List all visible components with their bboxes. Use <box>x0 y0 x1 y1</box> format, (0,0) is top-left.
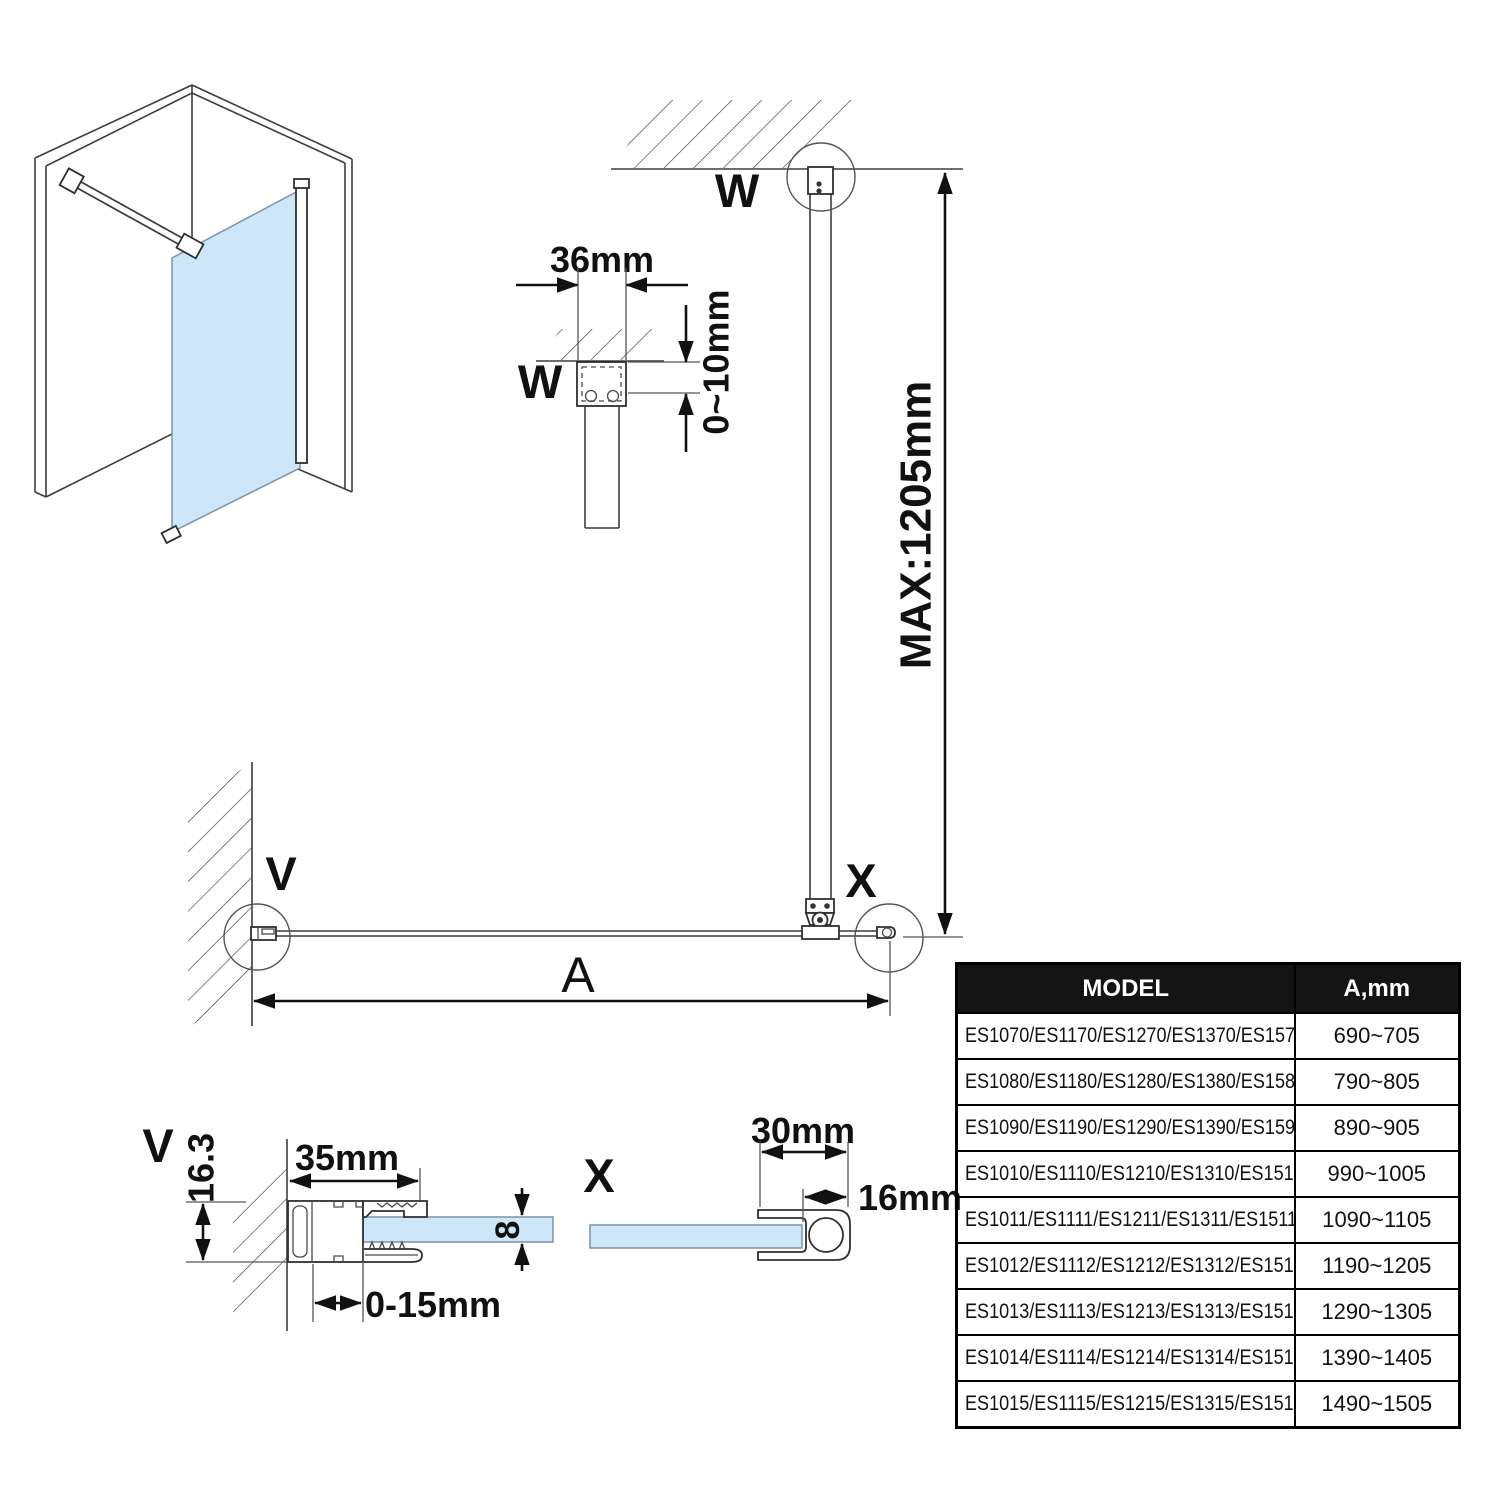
table-row: ES1080/ES1180/ES1280/ES1380/ES1580 790~8… <box>957 1059 1460 1105</box>
detail-w-bracket: 36mm W 0~10mm <box>516 239 737 528</box>
model-cell: ES1014/ES1114/ES1214/ES1314/ES1514 <box>965 1346 1295 1370</box>
label-w-main: W <box>715 164 760 217</box>
model-cell: ES1011/ES1111/ES1211/ES1311/ES1511 <box>965 1208 1295 1232</box>
brace-hinge <box>806 899 834 928</box>
support-bar-3d <box>60 168 204 258</box>
a-cell: 1390~1405 <box>1295 1335 1460 1381</box>
dim-a: A <box>561 947 595 1003</box>
model-cell: ES1012/ES1112/ES1212/ES1312/ES1512 <box>965 1254 1295 1278</box>
label-w-detail: W <box>518 355 563 408</box>
dim-0-15mm: 0-15mm <box>365 1284 501 1325</box>
model-cell: ES1080/ES1180/ES1280/ES1380/ES1580 <box>965 1070 1295 1094</box>
shower-spec-diagram: 36mm W 0~10mm W <box>0 0 1500 1500</box>
model-cell: ES1090/ES1190/ES1290/ES1390/ES1590 <box>965 1116 1295 1140</box>
dim-8: 8 <box>489 1221 527 1240</box>
isometric-view <box>35 85 352 543</box>
a-cell: 1290~1305 <box>1295 1289 1460 1335</box>
glass-foot-3d <box>162 526 181 543</box>
dim-30mm: 30mm <box>751 1110 855 1151</box>
label-x-plan: X <box>845 854 876 907</box>
model-cell: ES1015/ES1115/ES1215/ES1315/ES1515 <box>965 1392 1295 1416</box>
a-cell: 890~905 <box>1295 1105 1460 1151</box>
plan-view: V X A <box>188 762 923 1028</box>
table-row: ES1012/ES1112/ES1212/ES1312/ES1512 1190~… <box>957 1243 1460 1289</box>
a-cell: 1490~1505 <box>1295 1381 1460 1428</box>
dim-16-3: 16.3 <box>181 1133 222 1203</box>
table-row: ES1011/ES1111/ES1211/ES1311/ES1511 1090~… <box>957 1197 1460 1243</box>
detail-v-profile: V 16.3 35mm 8 0-15mm <box>142 1119 553 1331</box>
a-cell: 1090~1105 <box>1295 1197 1460 1243</box>
elevation-view: W MAX:1205mm <box>611 100 963 937</box>
table-row: ES1090/ES1190/ES1290/ES1390/ES1590 890~9… <box>957 1105 1460 1151</box>
label-x-detail: X <box>583 1149 614 1202</box>
a-cell: 1190~1205 <box>1295 1243 1460 1289</box>
detail-x-profile: X 30mm 16mm <box>583 1110 962 1260</box>
glass-section-x <box>590 1225 802 1248</box>
label-v-plan: V <box>265 847 297 900</box>
table-row: ES1015/ES1115/ES1215/ES1315/ES1515 1490~… <box>957 1381 1460 1428</box>
model-cell: ES1010/ES1110/ES1210/ES1310/ES1510 <box>965 1162 1295 1186</box>
a-cell: 990~1005 <box>1295 1151 1460 1197</box>
dim-0-10mm: 0~10mm <box>696 289 737 434</box>
a-cell: 690~705 <box>1295 1013 1460 1059</box>
table-header-row: MODEL A,mm <box>957 964 1460 1014</box>
table-row: ES1010/ES1110/ES1210/ES1310/ES1510 990~1… <box>957 1151 1460 1197</box>
dim-16mm: 16mm <box>858 1177 962 1218</box>
dim-35mm: 35mm <box>295 1137 399 1178</box>
dim-36mm: 36mm <box>550 239 654 280</box>
table-row: ES1070/ES1170/ES1270/ES1370/ES1570 690~7… <box>957 1013 1460 1059</box>
model-table: MODEL A,mm ES1070/ES1170/ES1270/ES1370/E… <box>955 962 1461 1429</box>
wall-profile-3d <box>296 186 307 463</box>
col-header-a: A,mm <box>1295 964 1460 1014</box>
label-v-detail: V <box>142 1119 174 1172</box>
model-cell: ES1070/ES1170/ES1270/ES1370/ES1570 <box>965 1024 1295 1048</box>
dim-max-1205mm: MAX:1205mm <box>892 381 941 670</box>
a-cell: 790~805 <box>1295 1059 1460 1105</box>
model-cell: ES1013/ES1113/ES1213/ES1313/ES1513 <box>965 1300 1295 1324</box>
table-row: ES1014/ES1114/ES1214/ES1314/ES1514 1390~… <box>957 1335 1460 1381</box>
col-header-model: MODEL <box>957 964 1295 1014</box>
table-row: ES1013/ES1113/ES1213/ES1313/ES1513 1290~… <box>957 1289 1460 1335</box>
